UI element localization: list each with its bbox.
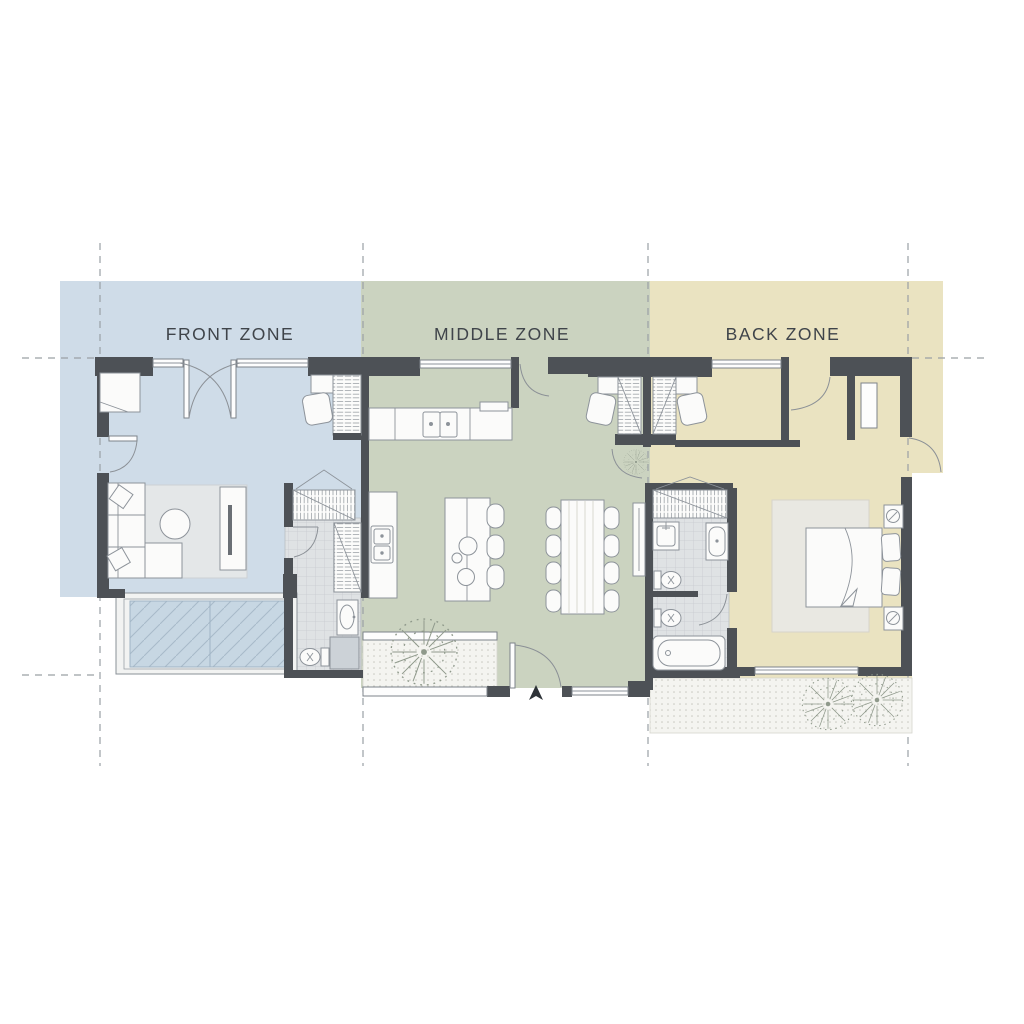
entry-closet-door: [861, 383, 877, 428]
bar-stool: [487, 535, 504, 559]
wall-hall-stub: [781, 357, 789, 442]
kitchen-shelf: [480, 402, 508, 411]
front-bath-sink: [337, 600, 358, 635]
bed: [806, 528, 901, 607]
wall-entry-door-left-block: [487, 686, 510, 697]
wall-bedroom-top: [675, 440, 800, 447]
dining-chair: [604, 590, 619, 612]
wall-entry-top: [846, 357, 912, 376]
wall-top-right-piece: [830, 357, 846, 376]
kitchen-counter-top: [369, 402, 512, 440]
window-kitchen: [420, 360, 511, 368]
window-bedroom: [755, 667, 858, 674]
dining-chair: [546, 590, 561, 612]
wall-kitchen-divider: [361, 357, 369, 598]
wall-kitchen-right: [511, 357, 519, 408]
back-toilet-1: [654, 571, 681, 589]
window-front-2: [237, 359, 308, 367]
pillow: [881, 567, 901, 595]
front-toilet: [300, 648, 329, 666]
zone-labels: FRONT ZONE MIDDLE ZONE BACK ZONE: [166, 324, 841, 344]
window-front-1: [153, 359, 183, 367]
sideboard: [633, 503, 645, 576]
wall-back-bath-left: [645, 483, 653, 690]
wall-workstation-bottom: [615, 434, 676, 445]
terrace: [116, 593, 297, 674]
floor-plan-page: FRONT ZONE MIDDLE ZONE BACK ZONE: [0, 0, 1024, 1024]
dining-chair: [546, 507, 561, 529]
window-courtyard-sill: [363, 687, 487, 696]
window-entry-side: [572, 687, 628, 695]
middle-zone-label: MIDDLE ZONE: [434, 324, 570, 344]
dining-chair: [604, 507, 619, 529]
back-toilet-2: [654, 609, 681, 627]
wall-top-mid: [548, 357, 590, 374]
wall-bottom-mid-corner: [628, 681, 650, 697]
coffee-table: [160, 509, 190, 539]
desk-chair: [676, 392, 708, 427]
wall-bottom-left: [97, 589, 125, 598]
shower: [330, 637, 359, 669]
back-zone-band-porch: [912, 281, 943, 473]
wall-front-bath-left-upper: [284, 483, 293, 527]
tv-console: [220, 487, 246, 570]
wall-left-lower: [97, 473, 109, 598]
dining-chair: [546, 562, 561, 584]
wall-back-bath-divider: [645, 591, 698, 597]
wall-bedroom-bottom-left: [740, 667, 755, 676]
desk-chair: [585, 392, 617, 427]
glass-door-panel: [130, 601, 210, 667]
window-back-hall: [712, 360, 781, 368]
front-bath-closet: [334, 523, 361, 592]
wall-entry-door-right-block: [562, 686, 572, 697]
wall-workstation-top: [588, 357, 712, 377]
pillow: [881, 533, 901, 561]
kitchen-counter-left: [369, 492, 397, 598]
back-bath-vanity: [706, 523, 728, 560]
back-zone-label: BACK ZONE: [726, 324, 841, 344]
glass-door-panel: [210, 601, 291, 667]
nightstand-bottom: [884, 607, 903, 630]
wall-front-bath-bottom: [284, 670, 363, 678]
back-bath-sink: [653, 522, 679, 550]
dining-chair: [546, 535, 561, 557]
bar-stool: [487, 565, 504, 589]
dining-chair: [604, 535, 619, 557]
wall-bedroom-bottom-right: [858, 667, 912, 676]
wall-right-upper: [900, 376, 912, 437]
bowl: [459, 537, 477, 555]
desk-chair: [302, 392, 334, 426]
kitchen-island: [445, 498, 504, 601]
wall-front-bath-left-lower: [284, 558, 293, 673]
nightstand-top: [884, 505, 903, 528]
front-zone-label: FRONT ZONE: [166, 324, 294, 344]
bathtub: [653, 636, 725, 670]
hall-corner-cabinet: [100, 373, 140, 412]
patio: [650, 678, 912, 733]
tv-screen: [228, 505, 232, 555]
bar-stool: [487, 504, 504, 528]
courtyard: [363, 632, 497, 689]
wall-back-bath-right-lower: [727, 628, 737, 673]
floor-plan: FRONT ZONE MIDDLE ZONE BACK ZONE: [0, 0, 1024, 1024]
dining-chair: [604, 562, 619, 584]
wall-entry-stub: [847, 373, 855, 440]
